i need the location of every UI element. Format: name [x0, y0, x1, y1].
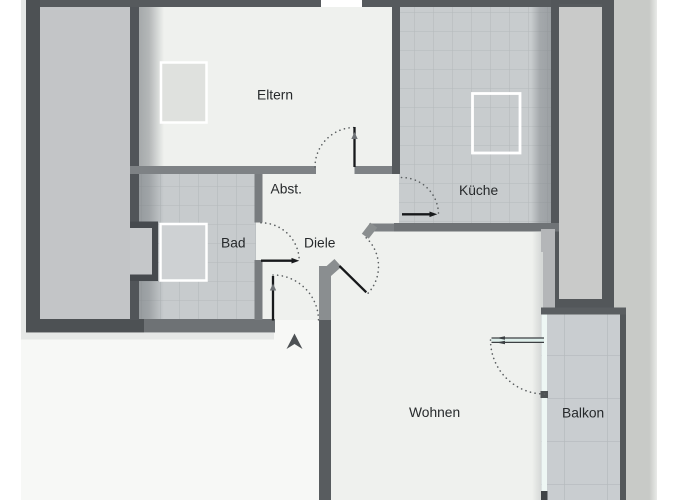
svg-text:Küche: Küche [459, 183, 498, 198]
svg-text:Wohnen: Wohnen [409, 405, 460, 420]
svg-text:Abst.: Abst. [271, 182, 302, 197]
svg-text:Diele: Diele [304, 236, 336, 251]
svg-text:Balkon: Balkon [562, 406, 604, 421]
svg-text:Eltern: Eltern [257, 88, 293, 103]
svg-text:Bad: Bad [221, 236, 246, 251]
